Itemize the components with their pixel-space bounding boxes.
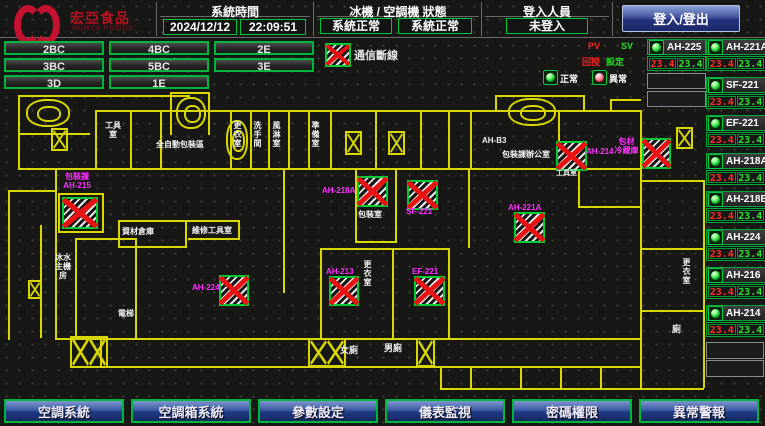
unit-led-icon — [708, 154, 723, 169]
wall-segment — [448, 248, 450, 340]
unit-values: 23.4 23.4 — [706, 246, 765, 261]
wall-segment — [642, 388, 704, 390]
unit-values: 23.4 23.4 — [706, 94, 765, 109]
wall-segment — [170, 92, 172, 135]
wall-segment — [560, 366, 562, 388]
elevator-icon — [345, 131, 362, 155]
wall-segment — [703, 180, 705, 388]
unit-row-ah-221a[interactable]: AH-221A — [706, 39, 765, 55]
unit-led-icon — [649, 40, 664, 55]
ahu-marker-ah-224[interactable] — [219, 275, 249, 306]
ahu-marker-ef-221[interactable] — [414, 276, 445, 306]
sv-value: 23.4 — [737, 210, 765, 221]
unit-name: AH-221A — [726, 42, 765, 53]
wall-segment — [470, 366, 472, 388]
unit-name: AH-214 — [726, 308, 760, 319]
wall-segment — [420, 110, 422, 168]
floor-button-3d[interactable]: 3D — [4, 75, 104, 89]
system-time-value: 22:09:51 — [240, 19, 306, 35]
wall-segment — [160, 110, 162, 168]
hmi-screen: { "header": { "brand": "宏亞食品", "brand_su… — [0, 0, 765, 426]
unit-row-ah-214[interactable]: AH-214 — [706, 305, 765, 321]
wall-segment — [642, 310, 704, 312]
logo: 宏亞食品 HUNYA FOODS — [6, 4, 154, 36]
header-bar: 宏亞食品 HUNYA FOODS 系統時間 2024/12/12 22:09:5… — [0, 0, 765, 38]
wall-segment — [95, 110, 97, 168]
nav-password-button[interactable]: 密碼權限 — [512, 399, 632, 423]
sv-value: 23.4 — [737, 96, 765, 107]
wall-segment — [268, 110, 270, 168]
room-label: 電梯 — [118, 309, 134, 318]
unit-values: 23.4 23.4 — [706, 208, 765, 223]
wall-segment — [578, 206, 642, 208]
room-label: 風淋室 — [272, 121, 281, 165]
unit-row-ah-224[interactable]: AH-224 — [706, 229, 765, 245]
ahu-label: 包裝課AH-215 — [54, 172, 100, 190]
sv-value: 23.4 — [737, 134, 765, 145]
room-label: 工具室 — [103, 121, 123, 139]
wall-segment — [440, 388, 642, 390]
unit-led-icon — [708, 192, 723, 207]
pv-value: 23.4 — [649, 58, 676, 69]
chiller-status-value: 系統正常 — [320, 18, 392, 34]
room-label: AH-B3 — [482, 136, 506, 145]
unit-row-ah-218b[interactable]: AH-218B — [706, 191, 765, 207]
ahu-marker-sf-221[interactable] — [407, 180, 438, 210]
wall-segment — [118, 220, 238, 222]
room-label: 更衣室 — [682, 258, 691, 298]
wall-segment — [130, 110, 132, 168]
elevator-icon — [28, 280, 42, 299]
room-label: 男廁 — [384, 344, 402, 353]
unit-led-icon — [708, 230, 723, 245]
ahu-label: 包材冷藏庫 — [613, 137, 640, 155]
ahu-marker-ah-218a[interactable] — [357, 176, 388, 207]
ahu-marker-ah-215[interactable] — [62, 197, 98, 229]
unit-name: AH-225 — [667, 42, 701, 53]
comm-fail-icon — [325, 43, 351, 67]
room-label: 廁 — [672, 325, 681, 334]
room-label: 包裝室 — [358, 210, 382, 219]
header-sep — [481, 2, 482, 36]
unit-led-icon — [708, 40, 723, 55]
room-label: 洗手間 — [253, 121, 262, 165]
wall-segment — [288, 110, 290, 168]
sv-sub-header: 設定 — [606, 55, 624, 68]
unit-values: 23.4 23.4 — [706, 56, 765, 71]
stairs-icon — [26, 99, 70, 127]
wall-segment — [118, 220, 120, 248]
unit-name: AH-218A — [726, 156, 765, 167]
wall-segment — [8, 190, 56, 192]
ahu-label: AH-218A — [322, 186, 355, 195]
unit-name: EF-221 — [726, 118, 759, 129]
nav-ac-system-button[interactable]: 空調系統 — [4, 399, 124, 423]
room-label: 冰水主機房 — [52, 253, 74, 280]
comm-fail-label: 通信斷線 — [354, 47, 398, 63]
wall-segment — [75, 238, 137, 240]
unit-row-ah-225[interactable]: AH-225 — [647, 39, 706, 55]
unit-row-ah-218a[interactable]: AH-218A — [706, 153, 765, 169]
pv-sub-header: 回授 — [582, 55, 600, 68]
floor-button-1e[interactable]: 1E — [109, 75, 209, 89]
abnormal-label: 異常 — [609, 72, 627, 85]
wall-segment — [8, 190, 10, 340]
wall-segment — [578, 168, 580, 208]
system-date-value: 2024/12/12 — [163, 19, 237, 35]
unit-values: 23.4 23.4 — [706, 284, 765, 299]
wall-segment — [185, 220, 187, 248]
pv-value: 23.4 — [708, 58, 736, 69]
ahu-label: SF-221 — [406, 207, 432, 216]
wall-segment — [355, 241, 397, 243]
wall-segment — [394, 248, 450, 250]
unit-name: SF-221 — [726, 80, 759, 91]
logo-mark-icon — [32, 5, 60, 45]
wall-segment — [320, 248, 322, 340]
wall-segment — [308, 110, 310, 168]
stairwell-icon — [70, 336, 108, 368]
wall-segment — [375, 110, 377, 168]
room-label: 準備室 — [311, 121, 320, 165]
empty-slot — [706, 342, 764, 359]
wall-segment — [520, 366, 522, 388]
wall-segment — [135, 238, 137, 338]
brand-subtitle: HUNYA FOODS — [72, 25, 134, 32]
wall-segment — [392, 248, 394, 340]
floor-button-5bc[interactable]: 5BC — [109, 58, 209, 72]
floor-button-2bc[interactable]: 2BC — [4, 41, 104, 55]
unit-name: AH-216 — [726, 270, 760, 281]
pv-value: 23.4 — [708, 172, 736, 183]
wall-segment — [395, 168, 397, 243]
system-time-label: 系統時間 — [160, 3, 310, 20]
sv-value: 23.4 — [737, 172, 765, 183]
floor-button-4bc[interactable]: 4BC — [109, 41, 209, 55]
empty-slot — [647, 91, 706, 107]
ahu-marker-cold-storage[interactable] — [642, 138, 671, 169]
wall-segment — [448, 110, 450, 168]
pv-value: 23.4 — [708, 134, 736, 145]
abnormal-led-icon — [592, 70, 607, 85]
room-label: 女廁 — [340, 346, 358, 355]
unit-values: 23.4 23.4 — [706, 132, 765, 147]
wall-segment — [238, 220, 240, 240]
nav-meter-monitor-button[interactable]: 儀表監視 — [385, 399, 505, 423]
empty-slot — [647, 73, 706, 89]
unit-led-icon — [708, 306, 723, 321]
header-sep — [612, 2, 613, 36]
room-label: 維修工具室 — [192, 226, 232, 235]
unit-led-icon — [708, 78, 723, 93]
ahu-label: AH-213 — [326, 267, 354, 276]
wall-segment — [55, 338, 642, 340]
pv-value: 23.4 — [708, 248, 736, 259]
unit-row-sf-221[interactable]: SF-221 — [706, 77, 765, 93]
wall-segment — [283, 168, 285, 293]
sv-value: 23.4 — [737, 286, 765, 297]
ahu-marker-ah-214[interactable] — [556, 141, 587, 171]
sv-header: SV — [621, 41, 633, 51]
elevator-icon — [388, 131, 405, 155]
unit-led-icon — [708, 116, 723, 131]
pv-value: 23.4 — [708, 286, 736, 297]
stairs-icon — [508, 98, 556, 126]
ahu-status-value: 系統正常 — [398, 18, 472, 34]
room-label: 工具室 — [556, 169, 577, 178]
wall-segment — [440, 366, 442, 390]
sv-value: 23.4 — [737, 248, 765, 259]
floor-button-3bc[interactable]: 3BC — [4, 58, 104, 72]
wall-segment — [18, 168, 642, 170]
unit-led-icon — [708, 268, 723, 283]
room-label: 更衣室 — [363, 260, 372, 304]
login-logout-button[interactable]: 登入/登出 — [622, 5, 740, 32]
wall-segment — [583, 95, 585, 112]
wall-segment — [600, 366, 602, 388]
header-sep — [313, 2, 314, 36]
nav-ahu-system-button[interactable]: 空調箱系統 — [131, 399, 251, 423]
sv-value: 23.4 — [737, 324, 765, 335]
wall-segment — [642, 180, 704, 182]
floor-button-3e[interactable]: 3E — [214, 58, 314, 72]
header-sep — [156, 2, 157, 36]
pv-value: 23.4 — [708, 210, 736, 221]
normal-led-icon — [543, 70, 558, 85]
ahu-marker-ah-213[interactable] — [329, 276, 359, 306]
unit-values: 23.4 23.4 — [706, 170, 765, 185]
elevator-icon — [51, 128, 68, 151]
wall-segment — [495, 95, 585, 97]
floor-button-2e[interactable]: 2E — [214, 41, 314, 55]
empty-slot — [706, 360, 764, 377]
wall-segment — [470, 110, 472, 168]
ahu-label: AH-224 — [192, 283, 220, 292]
nav-parameter-button[interactable]: 參數設定 — [258, 399, 378, 423]
wall-segment — [170, 92, 210, 94]
room-label: 全自動包裝區 — [156, 140, 204, 149]
stairs-icon — [176, 97, 206, 129]
wall-segment — [118, 246, 187, 248]
wall-segment — [18, 95, 190, 97]
unit-values-ah-225: 23.4 23.4 — [647, 56, 706, 71]
pv-value: 23.4 — [708, 96, 736, 107]
normal-label: 正常 — [560, 72, 578, 85]
ahu-label: AH-214 — [586, 147, 614, 156]
unit-row-ef-221[interactable]: EF-221 — [706, 115, 765, 131]
pv-value: 23.4 — [708, 324, 736, 335]
unit-name: AH-224 — [726, 232, 760, 243]
unit-name: AH-218B — [726, 194, 765, 205]
room-label: 更衣室 — [233, 121, 242, 165]
ahu-label: EF-221 — [412, 267, 438, 276]
wall-segment — [610, 99, 641, 101]
ahu-label: AH-221A — [508, 203, 541, 212]
elevator-icon — [416, 338, 435, 367]
sv-value: 23.4 — [677, 58, 704, 69]
wall-segment — [320, 248, 394, 250]
pv-header: PV — [588, 41, 600, 51]
unit-values: 23.4 23.4 — [706, 322, 765, 337]
nav-alarm-button[interactable]: 異常警報 — [639, 399, 759, 423]
wall-segment — [208, 92, 210, 135]
wall-segment — [468, 168, 470, 248]
wall-segment — [250, 110, 252, 168]
room-label: 包裝課辦公室 — [502, 150, 550, 159]
wall-segment — [495, 95, 497, 112]
login-user-value: 未登入 — [506, 18, 588, 34]
sv-value: 23.4 — [737, 58, 765, 69]
room-label: 資材倉庫 — [122, 227, 154, 236]
wall-segment — [610, 99, 612, 112]
header-divider — [0, 37, 765, 38]
elevator-icon — [676, 127, 693, 149]
wall-segment — [75, 238, 77, 338]
wall-segment — [330, 110, 332, 168]
ahu-marker-ah-221a[interactable] — [514, 212, 545, 243]
unit-row-ah-216[interactable]: AH-216 — [706, 267, 765, 283]
wall-segment — [642, 248, 704, 250]
wall-segment — [188, 238, 240, 240]
